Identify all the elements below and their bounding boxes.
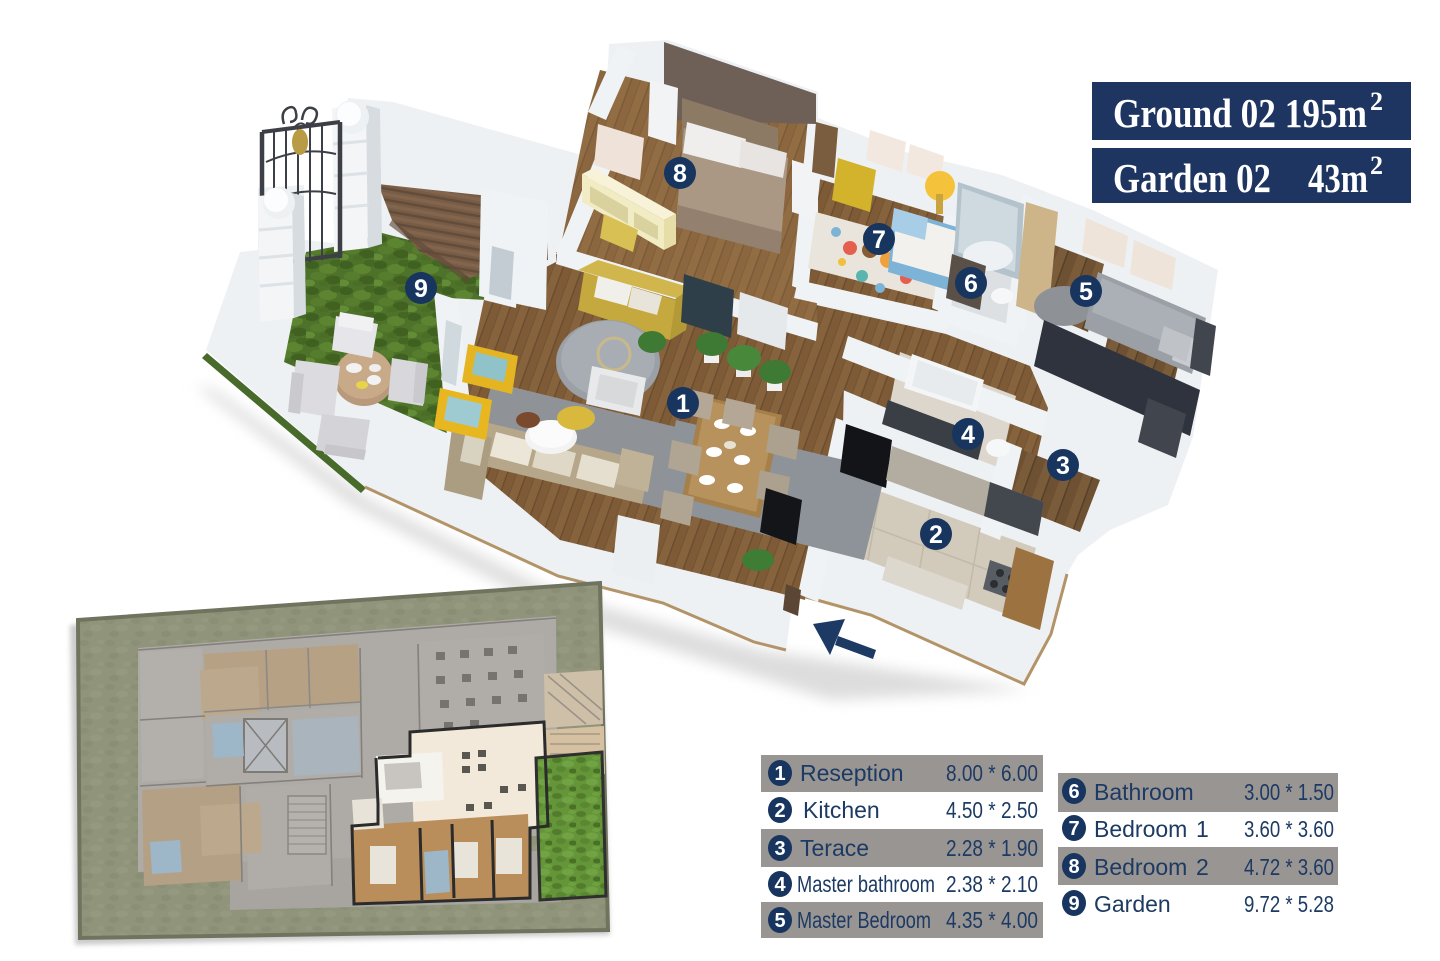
svg-text:Master bathroom: Master bathroom: [797, 871, 935, 897]
svg-text:9: 9: [414, 275, 428, 303]
svg-text:Master Bedroom: Master Bedroom: [797, 907, 931, 933]
svg-text:4.35 * 4.00: 4.35 * 4.00: [946, 907, 1038, 933]
svg-text:3: 3: [1056, 452, 1070, 480]
svg-text:1: 1: [676, 390, 690, 418]
svg-text:6: 6: [964, 270, 978, 298]
svg-text:6: 6: [1068, 781, 1079, 803]
svg-text:2: 2: [1370, 87, 1383, 116]
svg-text:5: 5: [1079, 278, 1093, 306]
svg-text:5: 5: [774, 910, 785, 932]
svg-text:7: 7: [1068, 818, 1079, 840]
svg-text:2: 2: [929, 521, 943, 549]
svg-text:Ground 02 195m: Ground 02 195m: [1113, 90, 1367, 136]
svg-text:Terace: Terace: [800, 835, 869, 861]
svg-text:4.50 * 2.50: 4.50 * 2.50: [946, 797, 1038, 823]
svg-text:Garden 02: Garden 02: [1113, 155, 1271, 201]
svg-text:Bedroom: Bedroom: [1094, 816, 1187, 842]
svg-text:Garden: Garden: [1094, 891, 1171, 917]
svg-text:1: 1: [774, 763, 785, 785]
svg-text:3.60 * 3.60: 3.60 * 3.60: [1244, 816, 1334, 842]
svg-text:2.38 * 2.10: 2.38 * 2.10: [946, 871, 1038, 897]
svg-text:2: 2: [1370, 151, 1383, 180]
svg-text:3: 3: [774, 838, 785, 860]
svg-text:Kitchen: Kitchen: [803, 797, 880, 823]
svg-text:2.28 * 1.90: 2.28 * 1.90: [946, 835, 1038, 861]
svg-text:Bathroom: Bathroom: [1094, 779, 1194, 805]
svg-text:9: 9: [1068, 893, 1079, 915]
svg-text:9.72 * 5.28: 9.72 * 5.28: [1244, 891, 1334, 917]
svg-text:4: 4: [774, 874, 786, 896]
svg-text:8.00 * 6.00: 8.00 * 6.00: [946, 760, 1038, 786]
svg-text:2: 2: [774, 800, 785, 822]
svg-text:43m: 43m: [1308, 155, 1368, 201]
svg-text:Reseption: Reseption: [800, 760, 904, 786]
svg-text:8: 8: [673, 160, 687, 188]
svg-text:1: 1: [1196, 816, 1209, 842]
svg-text:Bedroom: Bedroom: [1094, 854, 1187, 880]
svg-text:4: 4: [961, 421, 975, 449]
svg-text:4.72 * 3.60: 4.72 * 3.60: [1244, 854, 1334, 880]
svg-text:8: 8: [1068, 856, 1079, 878]
svg-text:7: 7: [872, 226, 886, 254]
svg-text:2: 2: [1196, 854, 1209, 880]
svg-text:3.00 * 1.50: 3.00 * 1.50: [1244, 779, 1334, 805]
